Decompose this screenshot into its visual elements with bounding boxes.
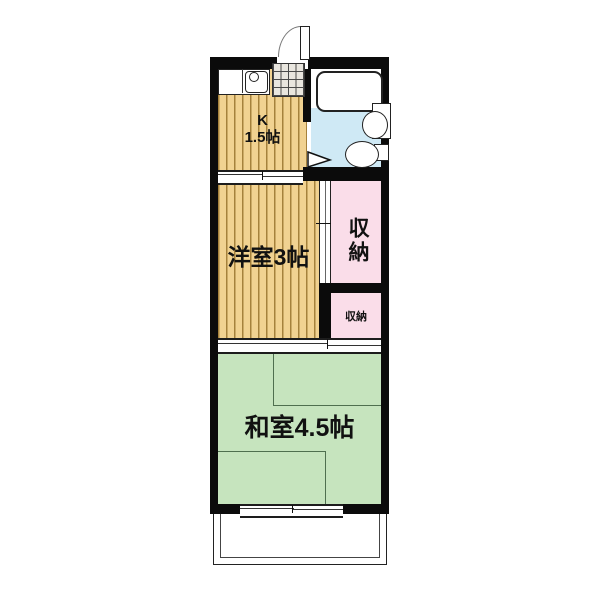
kitchen-label-size: 1.5帖 (218, 129, 307, 146)
japanese-room-label: 和室4.5帖 (218, 414, 381, 443)
overlay-shapes (0, 0, 600, 600)
floor-plan: K 1.5帖 洋室3帖 収納 収納 和室4.5帖 (0, 0, 600, 600)
closet-upper-label: 収納 (345, 206, 369, 276)
kitchen-label-k: K (218, 112, 307, 129)
closet-lower-label: 収納 (331, 311, 381, 324)
western-room-label: 洋室3帖 (218, 244, 319, 270)
kitchen-label: K 1.5帖 (218, 112, 307, 147)
door-triangle-icon (308, 152, 330, 167)
